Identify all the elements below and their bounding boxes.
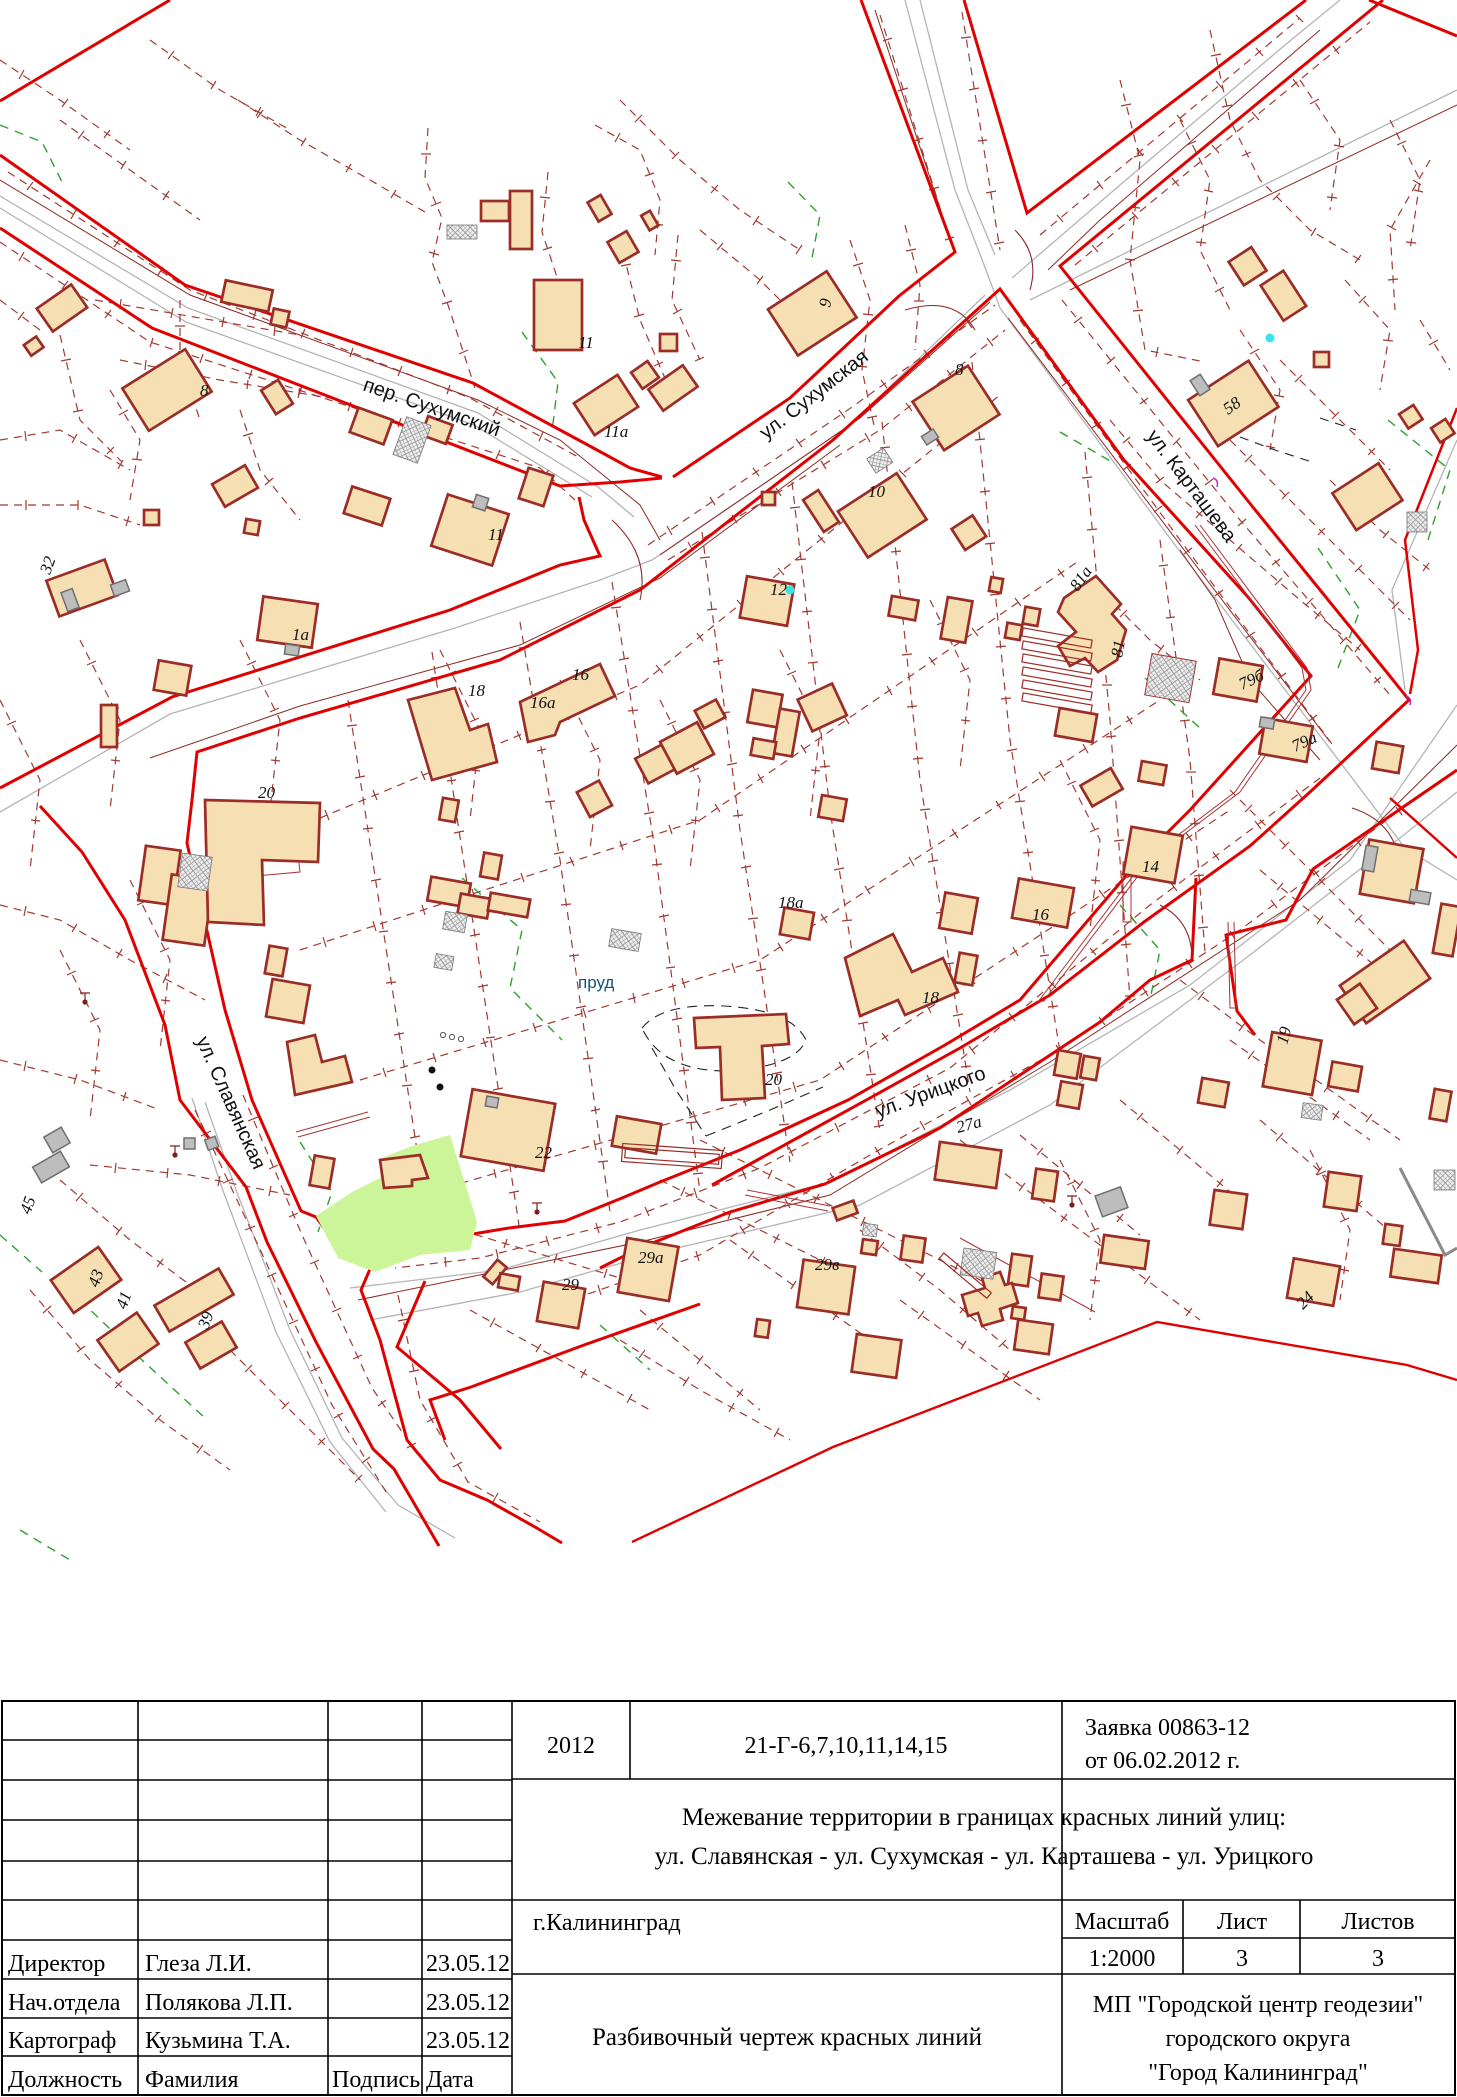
- svg-text:18: 18: [922, 988, 940, 1007]
- svg-text:21-Г-6,7,10,11,14,15: 21-Г-6,7,10,11,14,15: [745, 1733, 948, 1759]
- svg-text:пруд: пруд: [578, 973, 614, 992]
- svg-text:Заявка 00863-12: Заявка 00863-12: [1085, 1715, 1250, 1741]
- svg-text:1:2000: 1:2000: [1089, 1946, 1156, 1972]
- svg-text:29в: 29в: [815, 1255, 840, 1274]
- svg-text:3: 3: [1236, 1946, 1248, 1972]
- svg-text:МП "Городской центр геодезии": МП "Городской центр геодезии": [1093, 1992, 1423, 2018]
- svg-text:20: 20: [258, 783, 276, 802]
- svg-text:городского округа: городского округа: [1166, 2026, 1351, 2052]
- svg-text:18: 18: [468, 681, 486, 700]
- svg-text:20: 20: [765, 1070, 783, 1089]
- svg-text:23.05.12: 23.05.12: [426, 1990, 510, 2016]
- svg-text:16а: 16а: [530, 693, 556, 712]
- svg-text:Нач.отдела: Нач.отдела: [8, 1990, 121, 2016]
- svg-text:г.Калининград: г.Калининград: [533, 1910, 681, 1936]
- svg-text:Лист: Лист: [1217, 1909, 1268, 1935]
- svg-text:22: 22: [535, 1143, 553, 1162]
- svg-text:3: 3: [1372, 1946, 1384, 1972]
- svg-text:11: 11: [488, 525, 504, 544]
- svg-text:Глеза Л.И.: Глеза Л.И.: [145, 1951, 252, 1977]
- svg-text:23.05.12: 23.05.12: [426, 2028, 510, 2054]
- svg-text:Листов: Листов: [1341, 1909, 1414, 1935]
- svg-text:11: 11: [578, 333, 594, 352]
- svg-text:12: 12: [770, 580, 788, 599]
- svg-text:Должность: Должность: [8, 2067, 122, 2093]
- svg-text:10: 10: [868, 482, 886, 501]
- svg-text:"Город Калининград": "Город Калининград": [1148, 2060, 1368, 2086]
- svg-text:16: 16: [572, 665, 590, 684]
- svg-text:Межевание территории в граница: Межевание территории в границах красных …: [682, 1804, 1286, 1831]
- svg-text:18а: 18а: [778, 893, 804, 912]
- svg-text:8: 8: [200, 381, 209, 400]
- svg-text:от 06.02.2012 г.: от 06.02.2012 г.: [1085, 1748, 1240, 1774]
- svg-text:23.05.12: 23.05.12: [426, 1951, 510, 1977]
- svg-text:1а: 1а: [292, 625, 309, 644]
- svg-text:Подпись: Подпись: [332, 2067, 420, 2093]
- svg-text:ул. Славянская - ул. Сухумская: ул. Славянская - ул. Сухумская - ул. Кар…: [655, 1843, 1314, 1870]
- svg-text:Масштаб: Масштаб: [1075, 1909, 1170, 1935]
- svg-text:81: 81: [1107, 639, 1129, 659]
- svg-text:2012: 2012: [547, 1733, 595, 1759]
- svg-text:29: 29: [562, 1275, 580, 1294]
- svg-text:Разбивочный чертеж красных лин: Разбивочный чертеж красных линий: [592, 2024, 982, 2051]
- svg-text:11а: 11а: [604, 422, 628, 441]
- svg-text:29а: 29а: [638, 1248, 664, 1267]
- svg-text:Дата: Дата: [426, 2067, 474, 2093]
- svg-text:8: 8: [955, 360, 964, 379]
- svg-text:14: 14: [1142, 857, 1160, 876]
- svg-text:Директор: Директор: [8, 1951, 105, 1977]
- svg-text:Полякова Л.П.: Полякова Л.П.: [145, 1990, 293, 2016]
- svg-text:Фамилия: Фамилия: [145, 2067, 239, 2093]
- svg-text:16: 16: [1032, 905, 1050, 924]
- svg-text:Картограф: Картограф: [8, 2028, 116, 2054]
- svg-text:Кузьмина Т.А.: Кузьмина Т.А.: [145, 2028, 291, 2054]
